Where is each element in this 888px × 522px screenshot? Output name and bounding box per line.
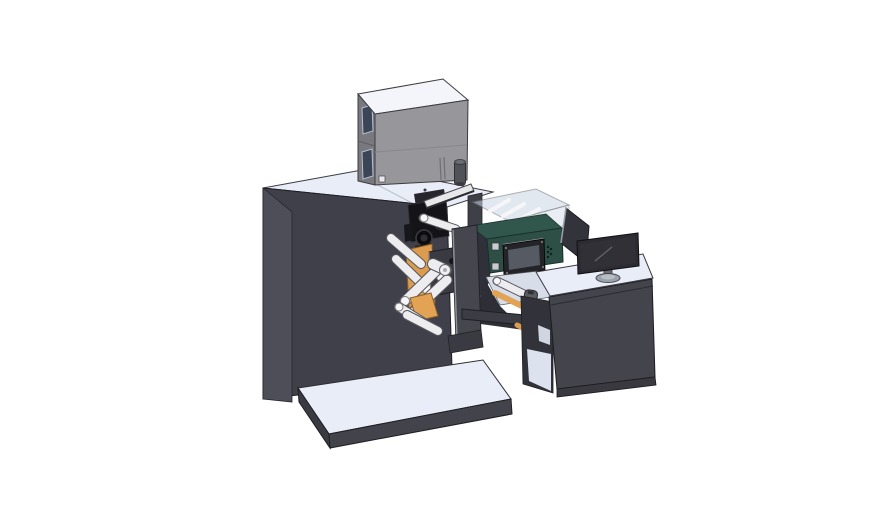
- hmi-vent-dot: [550, 253, 552, 255]
- hmi-screw: [542, 266, 544, 268]
- cabinet-left-face: [263, 188, 292, 402]
- cad-render-viewport: [0, 0, 888, 522]
- hmi-vent-dot: [547, 246, 549, 248]
- hmi-side-slot-upper: [492, 243, 499, 250]
- electrical-box-window-lower: [362, 149, 373, 179]
- roller-end-cap: [494, 278, 501, 285]
- roller-end-cap: [395, 303, 403, 311]
- print-head-gear-hub: [421, 235, 428, 242]
- rewind-core-hub: [443, 268, 447, 272]
- hinge-dot: [424, 189, 427, 192]
- filter-cylinder-base: [455, 182, 466, 186]
- machine-assembly-render: [0, 0, 888, 522]
- filter-cylinder-cap: [455, 160, 466, 165]
- filter-cylinder: [455, 162, 466, 184]
- hmi-screw: [541, 241, 543, 243]
- monitor-base-top: [601, 275, 615, 280]
- electrical-box-foot: [379, 176, 385, 182]
- electrical-box: [358, 79, 468, 186]
- hmi-vent-dot: [547, 256, 549, 258]
- hmi-side-slot-lower: [492, 263, 499, 270]
- hmi-screw: [506, 272, 508, 274]
- print-head-arm: [404, 223, 413, 242]
- hmi-vent-dot: [547, 251, 549, 253]
- hmi-vent-dot: [550, 248, 552, 250]
- hmi-screw: [505, 247, 507, 249]
- operator-desk: [521, 254, 656, 397]
- roller-end-cap: [420, 214, 428, 222]
